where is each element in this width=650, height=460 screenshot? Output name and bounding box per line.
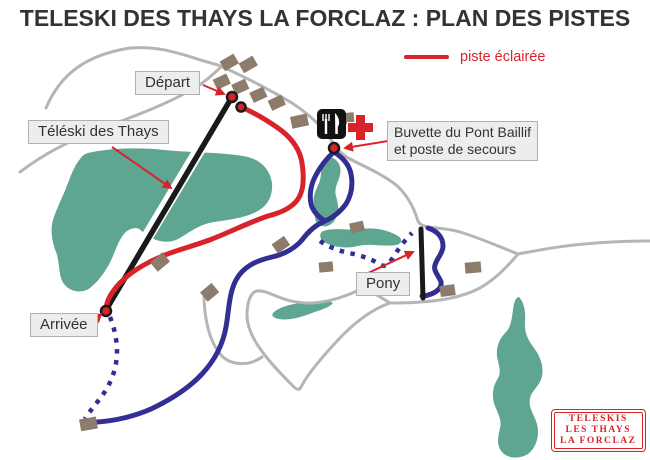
arrivee-label: Arrivée [30, 313, 98, 337]
resort-logo: TELESKIS LES THAYS LA FORCLAZ [551, 409, 646, 452]
building [239, 56, 258, 74]
pony-piste [422, 228, 443, 296]
arrivee-marker [101, 306, 111, 316]
depart-label: Départ [135, 71, 200, 95]
pony-label: Pony [356, 272, 410, 296]
depart-marker [227, 92, 237, 102]
fork-and-knife-icon [317, 109, 346, 139]
logo-line-3: LA FORCLAZ [560, 436, 637, 447]
buvette-arrow [345, 141, 388, 148]
road-east-branch [518, 241, 650, 254]
pony-lift-line [421, 229, 423, 298]
piste-start-marker [237, 103, 246, 112]
piste-map: TELESKI DES THAYS LA FORCLAZ : PLAN DES … [0, 0, 650, 460]
teleski-label: Téléski des Thays [28, 120, 169, 144]
building [319, 261, 334, 272]
building [79, 417, 98, 432]
building [465, 261, 482, 273]
map-canvas [0, 0, 650, 460]
logo-line-1: TELESKIS [560, 414, 637, 425]
road-spur [204, 293, 262, 364]
buvette-label: Buvette du Pont Baillif et poste de seco… [387, 121, 538, 161]
building [290, 113, 309, 128]
logo-line-2: LES THAYS [560, 425, 637, 436]
buvette-marker [329, 143, 339, 153]
forest-area-southeast [493, 297, 543, 458]
building [439, 284, 455, 297]
building [213, 74, 231, 90]
